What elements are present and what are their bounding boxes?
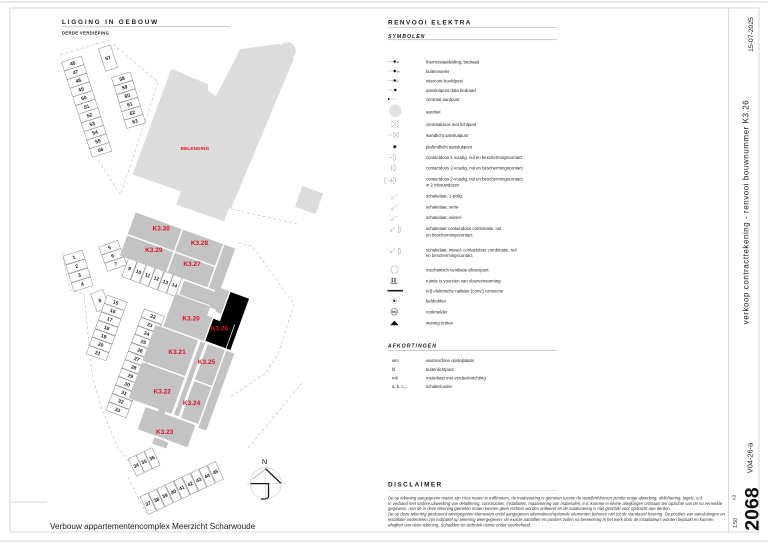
svg-text:aardnet: aardnet [426, 110, 441, 115]
svg-text:K3.29: K3.29 [145, 247, 163, 254]
svg-text:15-07-2025: 15-07-2025 [748, 17, 755, 52]
svg-text:bl: bl [392, 367, 395, 372]
svg-text:ruimte is voorzien van vloerve: ruimte is voorzien van vloerverwarming [426, 279, 501, 284]
svg-text:2068: 2068 [742, 487, 764, 531]
svg-text:contactdoos 2-voudig, nul en b: contactdoos 2-voudig, nul en bescherming… [426, 166, 524, 171]
svg-text:en beschermingscontact: en beschermingscontact [426, 233, 473, 238]
svg-text:a, b, c,...: a, b, c,... [392, 384, 408, 389]
svg-text:K3.25: K3.25 [198, 359, 216, 366]
svg-text:centraal aardpunt: centraal aardpunt [426, 97, 460, 102]
svg-text:K3.20: K3.20 [182, 316, 200, 323]
svg-text:afwijken van deze tekening. Sc: afwijken van deze tekening. Schadden en … [388, 522, 531, 527]
svg-text:buitenvoeler: buitenvoeler [426, 69, 450, 74]
svg-text:in 2 inbouwdozen: in 2 inbouwdozen [426, 183, 460, 188]
svg-text:schakelaar, wissel-: schakelaar, wissel- [426, 215, 463, 220]
svg-text:De op deze tekening gesitueerd: De op deze tekening gesitueerd weergegev… [388, 512, 726, 517]
svg-text:bv: bv [397, 70, 401, 74]
svg-text:beldrukker: beldrukker [426, 299, 447, 304]
svg-text:plafondlicht aansluitpunt: plafondlicht aansluitpunt [426, 145, 473, 150]
svg-text:DISCLAIMER: DISCLAIMER [388, 482, 443, 489]
svg-text:K3.30: K3.30 [153, 226, 171, 233]
svg-text:wasmachine opstelplaats: wasmachine opstelplaats [426, 358, 474, 363]
svg-text:DERDE VERDIEPING: DERDE VERDIEPING [62, 30, 109, 35]
svg-text:V04-26-a: V04-26-a [746, 442, 755, 473]
svg-text:meterkast met verdeelinrichtin: meterkast met verdeelinrichting [426, 376, 486, 381]
svg-text:rookmelder: rookmelder [426, 310, 448, 315]
svg-text:(el) elektrische radiator (con: (el) elektrische radiator (conv.) convec… [426, 289, 504, 294]
svg-text:en beschermingscontact: en beschermingscontact [426, 253, 473, 258]
svg-text:aansluitpunt data bedraad: aansluitpunt data bedraad [426, 88, 476, 93]
svg-text:SYMBOLEN: SYMBOLEN [388, 34, 425, 40]
svg-text:K3.21: K3.21 [168, 349, 186, 356]
svg-text:RENVOOI ELEKTRA: RENVOOI ELEKTRA [388, 20, 472, 27]
svg-text:schakelaar, serie-: schakelaar, serie- [426, 205, 460, 210]
svg-text:thermostaatleiding, bedraad: thermostaatleiding, bedraad [426, 60, 480, 65]
svg-text:De op tekening aangegeven mate: De op tekening aangegeven maten zijn cir… [388, 496, 703, 501]
svg-text:K3.27: K3.27 [183, 261, 201, 268]
svg-text:wandlicht aansluitpunt: wandlicht aansluitpunt [426, 133, 469, 138]
svg-text:installatie onderdelen zijn in: installatie onderdelen zijn indicatief o… [388, 517, 714, 522]
svg-text:contactdoos 1 voudig, nul en b: contactdoos 1 voudig, nul en bescherming… [426, 155, 523, 160]
svg-text:K3.28: K3.28 [191, 240, 209, 247]
svg-text:schakelaar, 1-polig: schakelaar, 1-polig [426, 194, 462, 199]
svg-text:woning entree: woning entree [426, 321, 454, 326]
svg-text:buitenlichtpunt: buitenlichtpunt [426, 367, 455, 372]
svg-text:RM: RM [392, 310, 397, 314]
svg-text:contactdoos 2-voudig, nul en b: contactdoos 2-voudig, nul en bescherming… [426, 177, 524, 182]
svg-text:N: N [262, 457, 267, 466]
svg-text:centraaldoos met lichtpunt: centraaldoos met lichtpunt [426, 122, 477, 127]
svg-text:schakelcodes: schakelcodes [426, 384, 452, 389]
svg-text:intercom-hoofdpost: intercom-hoofdpost [426, 79, 464, 84]
svg-text:verkoop contracttekening - ren: verkoop contracttekening - renvooi bouwn… [742, 100, 751, 325]
svg-text:wm: wm [392, 358, 399, 363]
svg-text:K3.24: K3.24 [183, 400, 201, 407]
svg-text:K3.22: K3.22 [154, 388, 172, 395]
svg-text:A3: A3 [732, 494, 737, 500]
svg-text:schakelaar, wissel- contactdoo: schakelaar, wissel- contactdoos combinat… [426, 248, 517, 253]
svg-text:th: th [397, 60, 400, 64]
svg-text:AFKORTINGEN: AFKORTINGEN [387, 344, 437, 350]
svg-text:K3.23: K3.23 [156, 429, 174, 436]
svg-text:mechanisch ventilatie afvoerpu: mechanisch ventilatie afvoerpunt [426, 268, 489, 273]
svg-text:1:50: 1:50 [733, 518, 739, 528]
svg-text:LIGGING IN GEBOUW: LIGGING IN GEBOUW [62, 19, 159, 26]
svg-text:schakelaar contactdoos combina: schakelaar contactdoos combinatie, nul [426, 226, 501, 231]
svg-text:BELENDING: BELENDING [181, 146, 210, 151]
svg-text:Verbouw appartementencomplex M: Verbouw appartementencomplex Meerzicht S… [50, 522, 256, 531]
svg-text:gegevens. Aan de in deze teken: gegevens. Aan de in deze tekening gemete… [388, 506, 671, 511]
svg-text:In verband met nadere uitwerki: In verband met nadere uitwerking van det… [388, 501, 723, 506]
svg-text:mk: mk [392, 376, 399, 381]
svg-text:K3.26: K3.26 [211, 326, 229, 333]
